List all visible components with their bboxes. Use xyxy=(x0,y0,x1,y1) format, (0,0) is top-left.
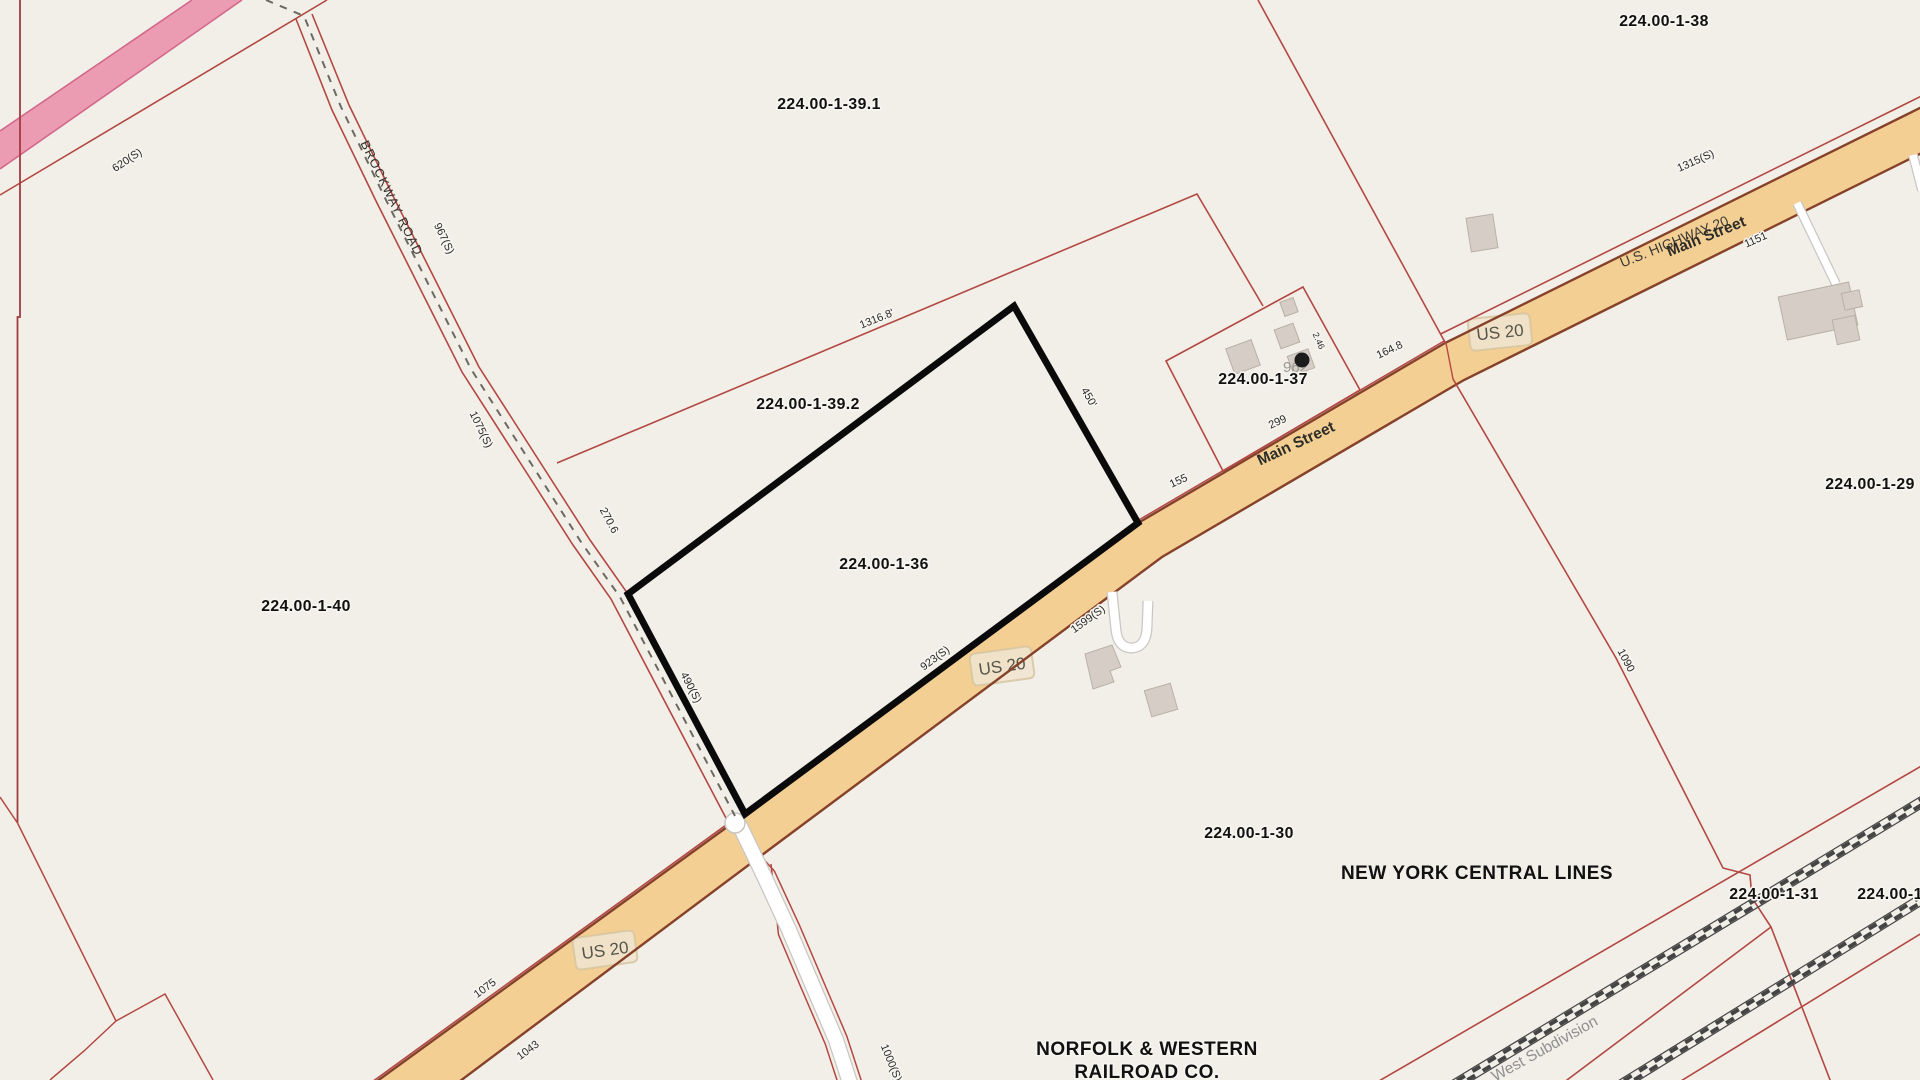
svg-text:224.00-1-30: 224.00-1-30 xyxy=(1204,825,1294,842)
svg-text:224.00-1-40: 224.00-1-40 xyxy=(261,598,351,615)
svg-text:224.00-1-31: 224.00-1-31 xyxy=(1729,886,1819,903)
svg-text:224.00-1-38: 224.00-1-38 xyxy=(1619,13,1709,30)
svg-text:224.00-1-29: 224.00-1-29 xyxy=(1825,476,1915,493)
svg-text:RAILROAD CO.: RAILROAD CO. xyxy=(1074,1062,1219,1080)
svg-text:224.00-1-37: 224.00-1-37 xyxy=(1218,371,1308,388)
svg-text:224.00-1-39.1: 224.00-1-39.1 xyxy=(777,96,881,113)
svg-text:224.00-1-39.2: 224.00-1-39.2 xyxy=(756,396,860,413)
svg-text:224.00-1-36: 224.00-1-36 xyxy=(839,556,929,573)
svg-text:224.00-1-32: 224.00-1-32 xyxy=(1857,886,1920,903)
svg-text:NEW YORK CENTRAL LINES: NEW YORK CENTRAL LINES xyxy=(1341,863,1613,884)
svg-text:NORFOLK & WESTERN: NORFOLK & WESTERN xyxy=(1036,1039,1258,1060)
